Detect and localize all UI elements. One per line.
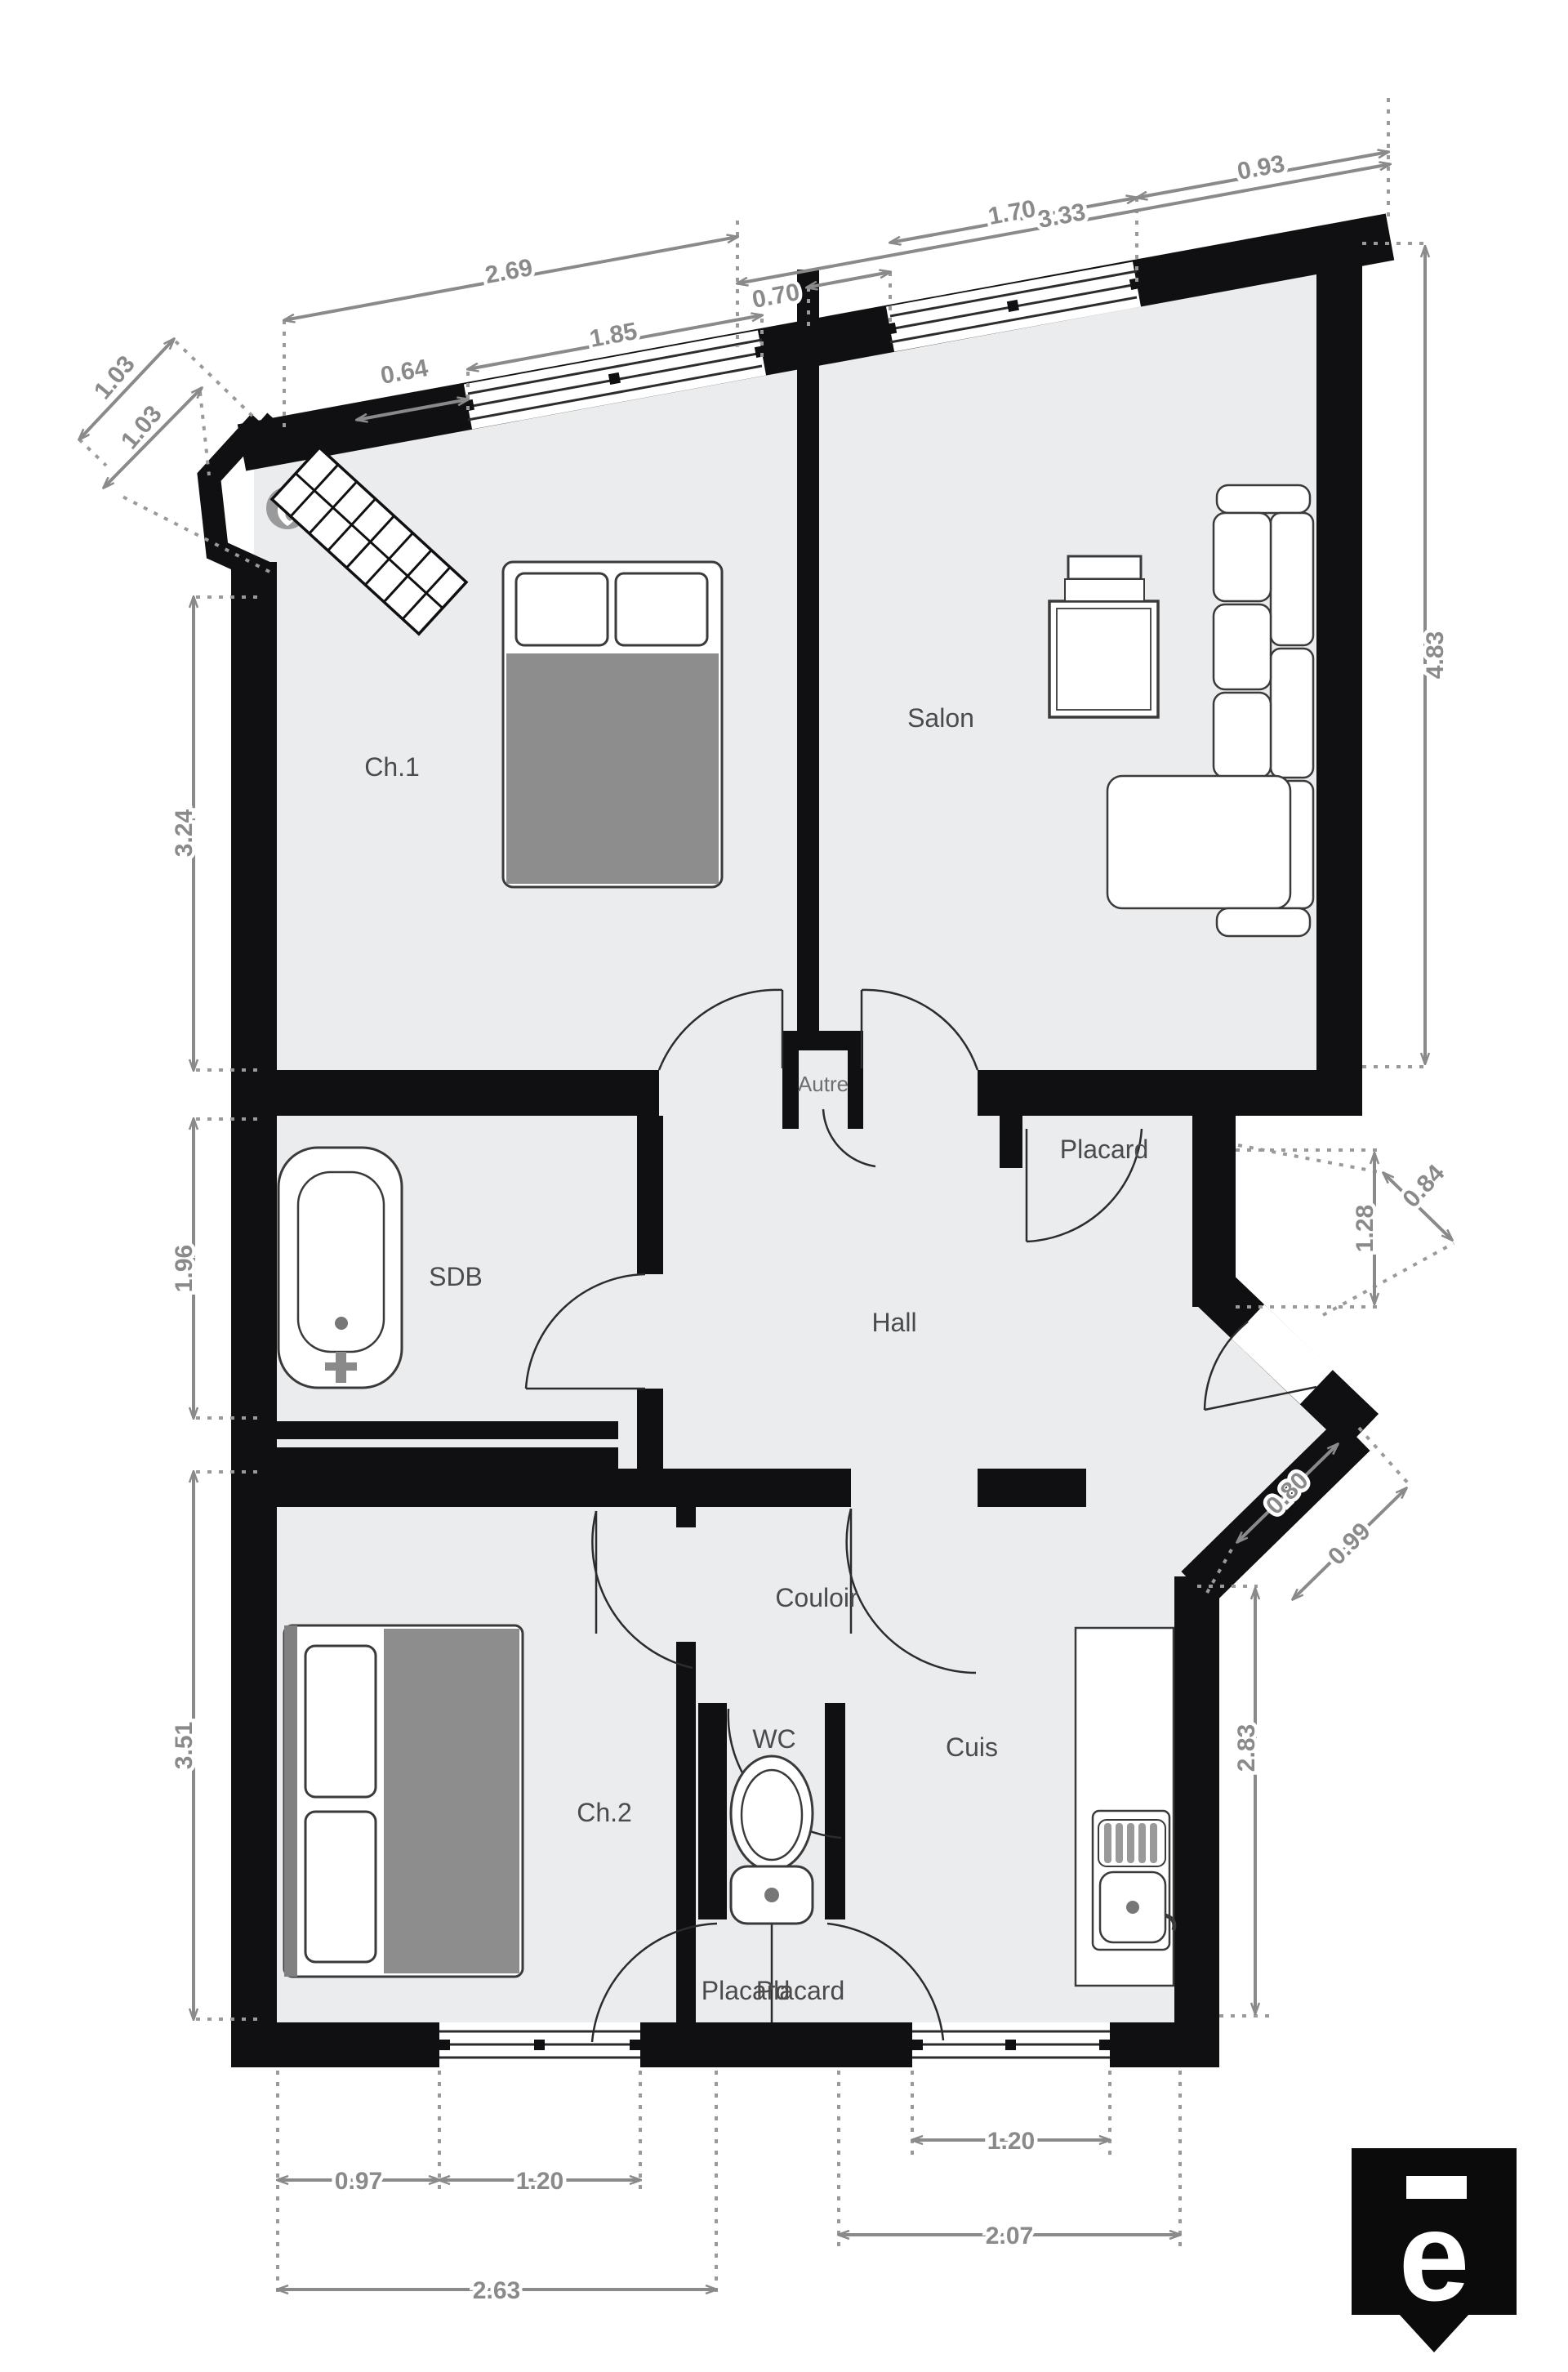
floor-plan-page: 3.33 0.93 1.70 0.70 2.69 1.85 0.64 1.03 … [0,0,1568,2372]
wall-autre-bar [782,1031,863,1050]
wall-couloir-top-a [696,1469,851,1507]
room-label-cuis: Cuis [946,1732,998,1762]
wall-hall-top-left [254,1070,659,1116]
dim-0-64: 0.64 [378,354,430,390]
dim-1-70: 1.70 [986,195,1037,230]
wall-cuis-right [1174,1576,1219,2067]
wall-sdb-bottom-a [231,1421,618,1439]
room-label-wc: WC [752,1724,795,1754]
wall-wc-left [698,1703,727,1919]
wall-right [1316,245,1362,1116]
brand-logo: e [1352,2148,1517,2352]
wall-wc-right [825,1703,845,1919]
room-label-salon: Salon [907,703,974,733]
bed-ch1 [503,562,722,887]
dim-2-63: 2.63 [473,2277,520,2304]
wall-ch2-top [231,1469,696,1507]
floor-plan-canvas: 3.33 0.93 1.70 0.70 2.69 1.85 0.64 1.03 … [0,0,1568,2372]
wall-placard-left [1000,1116,1022,1168]
wall-hall-top-right [978,1070,1362,1116]
wall-ch1-salon [797,270,819,1031]
dim-2-83: 2.83 [1233,1724,1260,1772]
dim-3-51: 3.51 [171,1722,198,1769]
dim-1-28: 1.28 [1352,1205,1379,1252]
dim-0-70: 0.70 [750,279,801,314]
dim-1-03b: 1.03 [116,400,167,454]
wall-ch2-right [676,1642,696,2022]
dim-1-96: 1.96 [171,1245,198,1292]
dim-2-07: 2.07 [986,2223,1033,2249]
dim-1-20a: 1.20 [516,2168,563,2195]
dim-line-0-70 [807,272,890,288]
room-label-autre: Autre [798,1072,849,1096]
wall-sdb-bottom-b [231,1447,618,1469]
dim-0-97: 0.97 [335,2168,382,2195]
wall-autre-left [782,1050,799,1129]
wall-sdb-right-lower [637,1389,663,1469]
room-label-sdb: SDB [429,1262,483,1291]
dim-2-69: 2.69 [483,254,534,289]
wall-left [231,562,277,2067]
wall-couloir-top-b [978,1469,1086,1507]
room-label-couloir: Couloir [775,1583,858,1612]
dim-3-24: 3.24 [171,809,198,857]
room-label-ch1: Ch.1 [364,752,420,782]
dim-0-84: 0.84 [1397,1160,1450,1213]
room-label-hall: Hall [871,1308,916,1337]
logo-letter: e [1399,2186,1470,2328]
wall-sdb-right-upper [637,1116,663,1274]
room-label-placard-b2: Placard [756,1976,845,2005]
dim-4-83: 4.83 [1422,631,1449,679]
room-label-ch2: Ch.2 [577,1798,632,1827]
toilet [731,1756,813,1924]
room-label-placard: Placard [1060,1135,1149,1164]
bed-ch2 [284,1625,523,1977]
dim-1-03a: 1.03 [89,350,140,404]
dim-0-93: 0.93 [1235,150,1286,185]
kitchen-counter [1076,1628,1174,1986]
window-ch2 [439,2022,640,2067]
wall-bay-link [260,421,282,441]
dim-3-33: 3.33 [1036,198,1087,234]
dim-1-85: 1.85 [587,318,639,353]
wall-ch2-right-upper [676,1507,696,1527]
tv-stand [1049,556,1158,717]
dim-1-20b: 1.20 [987,2128,1035,2155]
bathtub [278,1148,402,1388]
